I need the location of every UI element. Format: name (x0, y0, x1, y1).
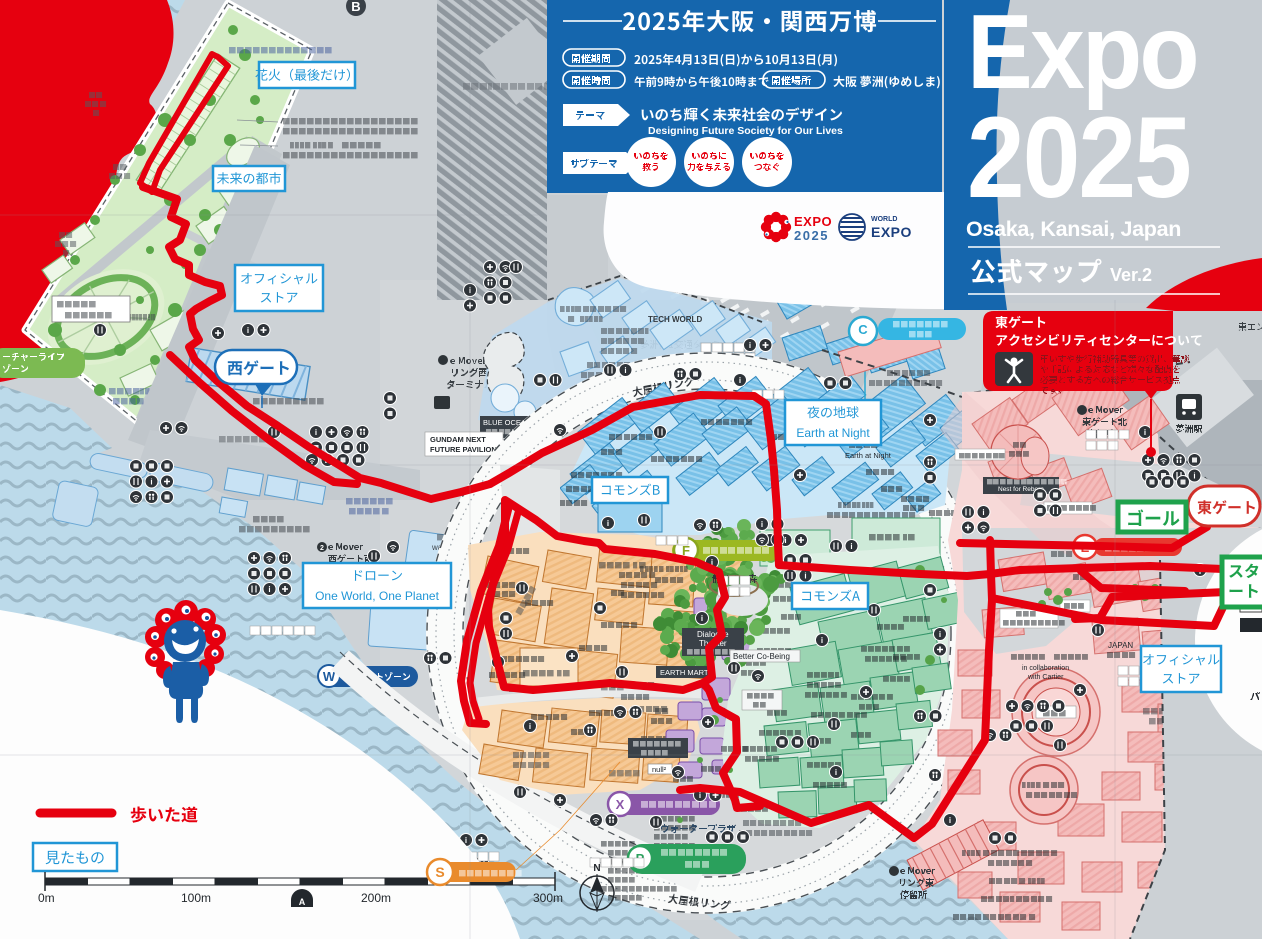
svg-text:i: i (939, 630, 941, 639)
svg-text:JAPAN: JAPAN (1108, 641, 1133, 650)
svg-text:EXPO: EXPO (871, 224, 912, 240)
svg-text:A: A (299, 897, 306, 907)
svg-text:i: i (699, 791, 701, 800)
svg-text:S: S (435, 864, 444, 880)
svg-text:Ver.2: Ver.2 (1110, 265, 1152, 285)
svg-text:i: i (821, 636, 823, 645)
svg-text:Better Co-Being: Better Co-Being (733, 652, 790, 661)
svg-text:WORLD: WORLD (871, 216, 897, 223)
svg-text:i: i (982, 508, 984, 517)
svg-text:Designing Future Society for O: Designing Future Society for Our Lives (648, 125, 843, 137)
svg-text:i: i (624, 366, 626, 375)
svg-text:X: X (616, 797, 625, 812)
svg-text:i: i (835, 768, 837, 777)
svg-text:EARTH MART: EARTH MART (660, 668, 709, 677)
svg-text:i: i (739, 376, 741, 385)
svg-text:i: i (150, 478, 152, 487)
svg-text:i: i (315, 428, 317, 437)
svg-text:i: i (1144, 428, 1146, 437)
svg-text:i: i (784, 536, 786, 545)
svg-text:i: i (247, 326, 249, 335)
svg-text:i: i (268, 585, 270, 594)
svg-text:2: 2 (320, 545, 324, 552)
svg-text:i: i (465, 836, 467, 845)
svg-text:i: i (804, 572, 806, 581)
svg-text:FUTURE PAVILION: FUTURE PAVILION (430, 445, 497, 454)
svg-text:Osaka, Kansai, Japan: Osaka, Kansai, Japan (966, 217, 1181, 241)
svg-text:i: i (529, 722, 531, 731)
svg-text:Earth at Night: Earth at Night (796, 426, 870, 440)
svg-text:Earth at Night: Earth at Night (845, 451, 892, 460)
svg-text:in collaboration: in collaboration (1022, 665, 1069, 672)
svg-text:2025: 2025 (794, 228, 829, 243)
svg-text:i: i (850, 542, 852, 551)
svg-text:i: i (607, 519, 609, 528)
svg-text:N: N (593, 863, 600, 874)
svg-text:0m: 0m (38, 891, 55, 905)
svg-text:i: i (1193, 472, 1195, 481)
svg-text:2025: 2025 (967, 94, 1190, 222)
svg-text:null²: null² (652, 765, 667, 774)
svg-text:EXPO: EXPO (794, 214, 832, 229)
svg-text:i: i (949, 816, 951, 825)
svg-text:i: i (761, 520, 763, 529)
svg-text:B: B (351, 0, 360, 14)
svg-text:100m: 100m (181, 891, 211, 905)
svg-text:GUNDAM NEXT: GUNDAM NEXT (430, 435, 486, 444)
svg-text:One World, One Planet: One World, One Planet (315, 589, 440, 603)
svg-text:i: i (749, 341, 751, 350)
svg-text:300m: 300m (533, 891, 563, 905)
svg-text:200m: 200m (361, 891, 391, 905)
svg-text:TECH WORLD: TECH WORLD (648, 315, 702, 324)
svg-text:i: i (701, 614, 703, 623)
svg-text:C: C (858, 322, 868, 337)
svg-text:with Cartier: with Cartier (1027, 674, 1064, 681)
